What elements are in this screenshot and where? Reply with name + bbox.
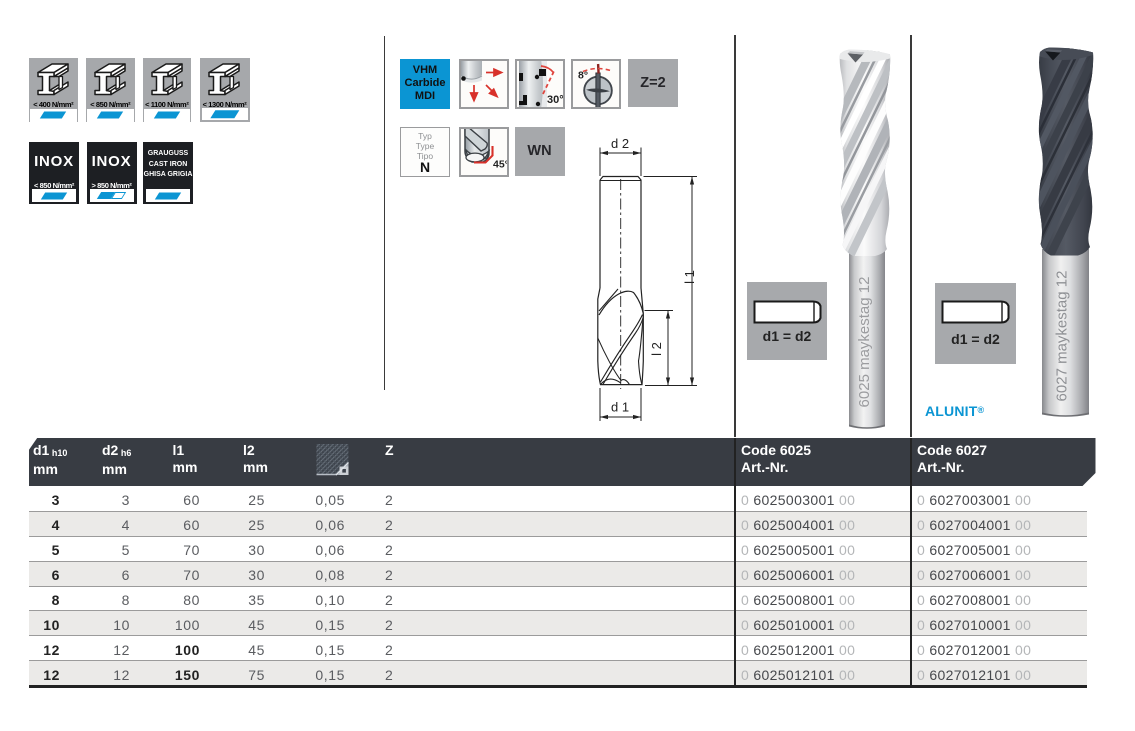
svg-text:d 1: d 1 bbox=[611, 400, 629, 415]
svg-text:45°: 45° bbox=[493, 158, 507, 170]
svg-text:l 2: l 2 bbox=[649, 342, 664, 356]
svg-text:6027 maykestag 12: 6027 maykestag 12 bbox=[1054, 271, 1071, 402]
svg-text:6025 maykestag 12: 6025 maykestag 12 bbox=[856, 277, 873, 408]
svg-text:d 2: d 2 bbox=[611, 136, 629, 151]
svg-text:30°: 30° bbox=[547, 94, 563, 106]
svg-text:8°: 8° bbox=[578, 69, 588, 81]
svg-text:l 1: l 1 bbox=[682, 270, 697, 284]
